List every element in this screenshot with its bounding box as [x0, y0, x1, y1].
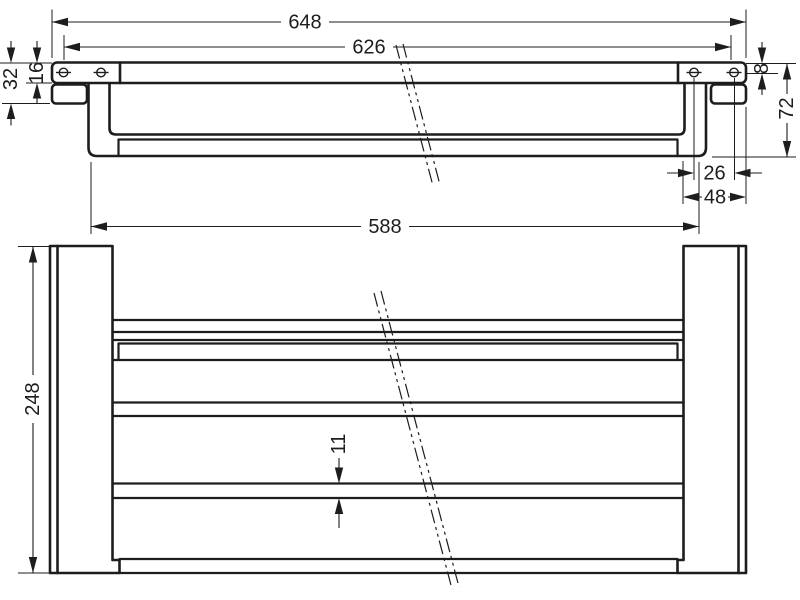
dim-48-label: 48	[704, 187, 726, 209]
middle-wire	[113, 403, 684, 417]
dim-hole-spacing: 26	[667, 78, 762, 185]
dim-248-label: 248	[22, 382, 44, 415]
dim-626-label: 626	[352, 37, 385, 59]
dim-648-label: 648	[288, 12, 321, 34]
dim-26-label: 26	[703, 163, 725, 185]
right-bracket-plan	[678, 246, 747, 573]
left-bracket-plan	[50, 246, 120, 573]
technical-drawing-page: 648 626 32 16	[0, 0, 800, 600]
towel-rack-drawing: 648 626 32 16	[0, 0, 800, 600]
bracket-arms-outer-and-rail-bottom	[89, 84, 707, 156]
plan-break-line	[374, 291, 459, 589]
dim-8-label: 8	[751, 63, 773, 74]
dim-72-label: 72	[776, 97, 798, 119]
front-view	[52, 44, 746, 186]
left-wall-plate-lower	[52, 85, 87, 104]
plan-view-dimensions: 248 11	[18, 247, 350, 574]
dim-shelf-edge-thickness: 8	[746, 42, 796, 95]
dim-overall-width: 648	[52, 10, 746, 59]
dim-16-label: 16	[26, 62, 48, 84]
dim-mounting-width: 626	[64, 35, 731, 60]
shelf-front-bar	[52, 63, 746, 84]
dim-bracket-height: 72	[712, 64, 798, 158]
dim-588-label: 588	[368, 216, 401, 238]
dim-bar-length: 588	[91, 162, 699, 238]
wall-side-bar	[120, 559, 678, 573]
dim-plate-width: 48	[683, 107, 746, 209]
screw-holes	[56, 68, 742, 77]
dim-11-label: 11	[328, 434, 350, 455]
plate-separators	[120, 63, 678, 84]
front-break-line	[396, 44, 440, 186]
plan-view	[50, 246, 746, 589]
dim-wire-width: 11	[328, 434, 350, 528]
rear-wire	[113, 484, 684, 499]
front-view-dimensions: 648 626 32 16	[0, 10, 798, 239]
dim-plate-height: 16	[26, 41, 52, 104]
front-wire	[113, 320, 684, 332]
dim-32-label: 32	[0, 68, 22, 90]
shelf-wires	[113, 320, 684, 573]
towel-rail-face	[119, 140, 678, 157]
dim-depth: 248	[18, 247, 50, 574]
bracket-arms-inner-and-rail-top	[110, 84, 685, 135]
right-wall-plate-lower	[711, 85, 746, 104]
